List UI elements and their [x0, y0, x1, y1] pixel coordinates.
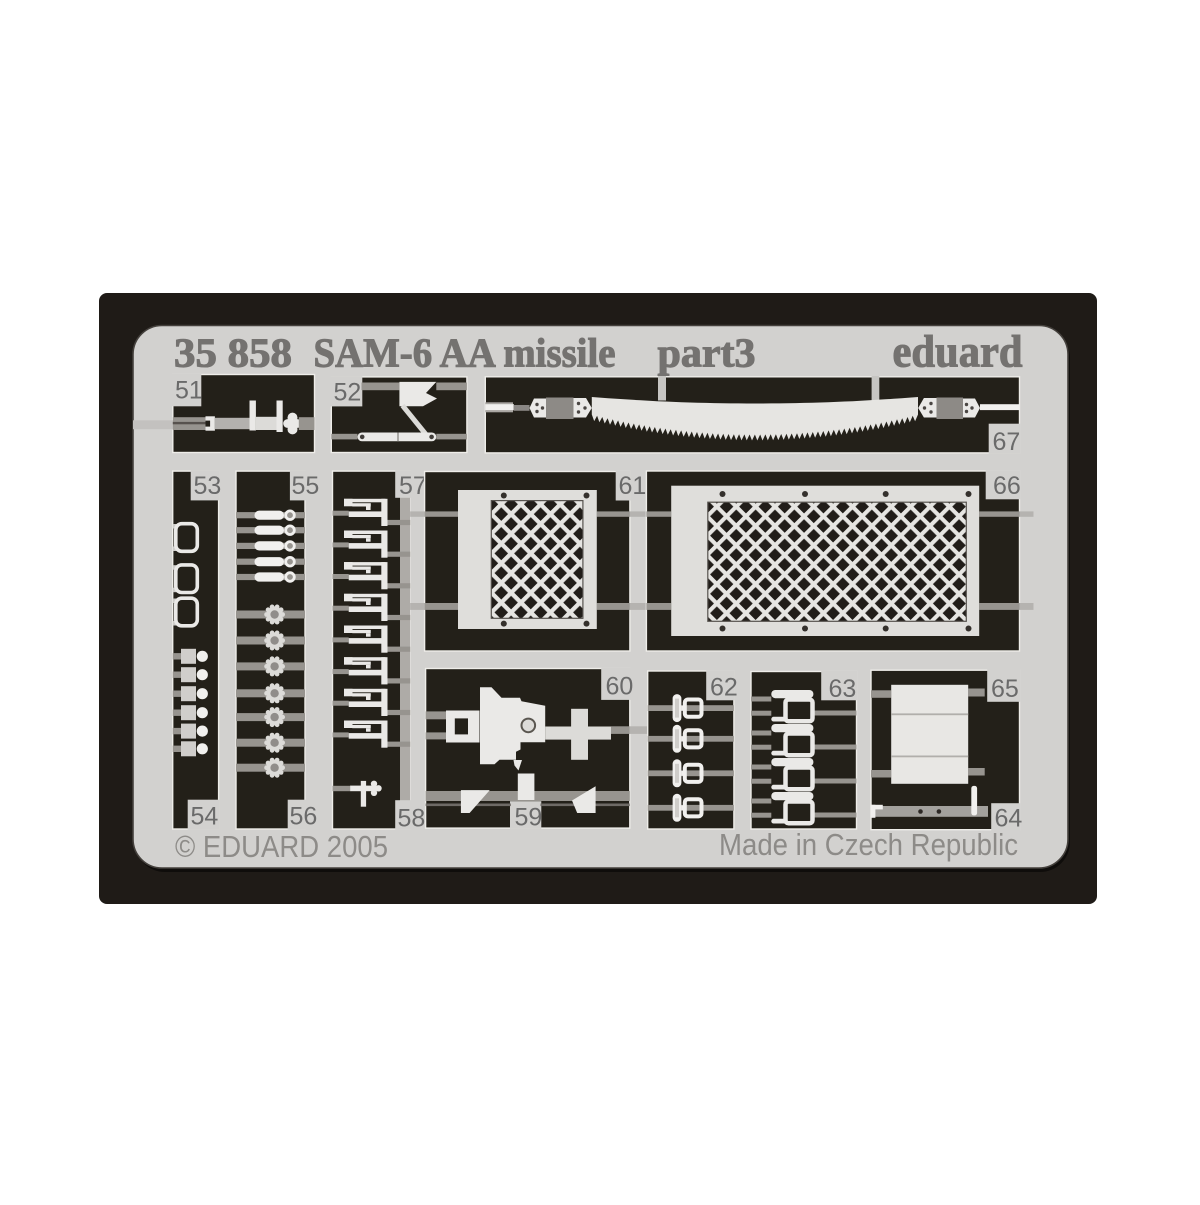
- svg-text:eduard: eduard: [893, 326, 1023, 377]
- svg-text:© EDUARD 2005: © EDUARD 2005: [175, 829, 388, 864]
- svg-text:57: 57: [399, 472, 427, 500]
- svg-text:53: 53: [194, 472, 222, 500]
- svg-text:part3: part3: [658, 330, 756, 376]
- svg-text:SAM-6 AA missile: SAM-6 AA missile: [314, 330, 616, 376]
- svg-text:62: 62: [710, 674, 738, 702]
- svg-text:65: 65: [991, 675, 1019, 703]
- svg-text:60: 60: [606, 673, 634, 701]
- svg-text:59: 59: [515, 804, 543, 832]
- svg-text:54: 54: [191, 803, 219, 831]
- svg-text:63: 63: [829, 675, 857, 703]
- svg-text:51: 51: [175, 377, 203, 405]
- svg-text:52: 52: [334, 379, 362, 407]
- svg-text:66: 66: [993, 472, 1021, 500]
- svg-text:55: 55: [292, 472, 320, 500]
- svg-text:61: 61: [619, 472, 647, 500]
- svg-text:67: 67: [993, 428, 1021, 456]
- svg-text:Made in Czech Republic: Made in Czech Republic: [719, 827, 1018, 862]
- svg-text:58: 58: [398, 805, 426, 833]
- svg-text:35 858: 35 858: [174, 330, 292, 376]
- svg-text:56: 56: [290, 803, 318, 831]
